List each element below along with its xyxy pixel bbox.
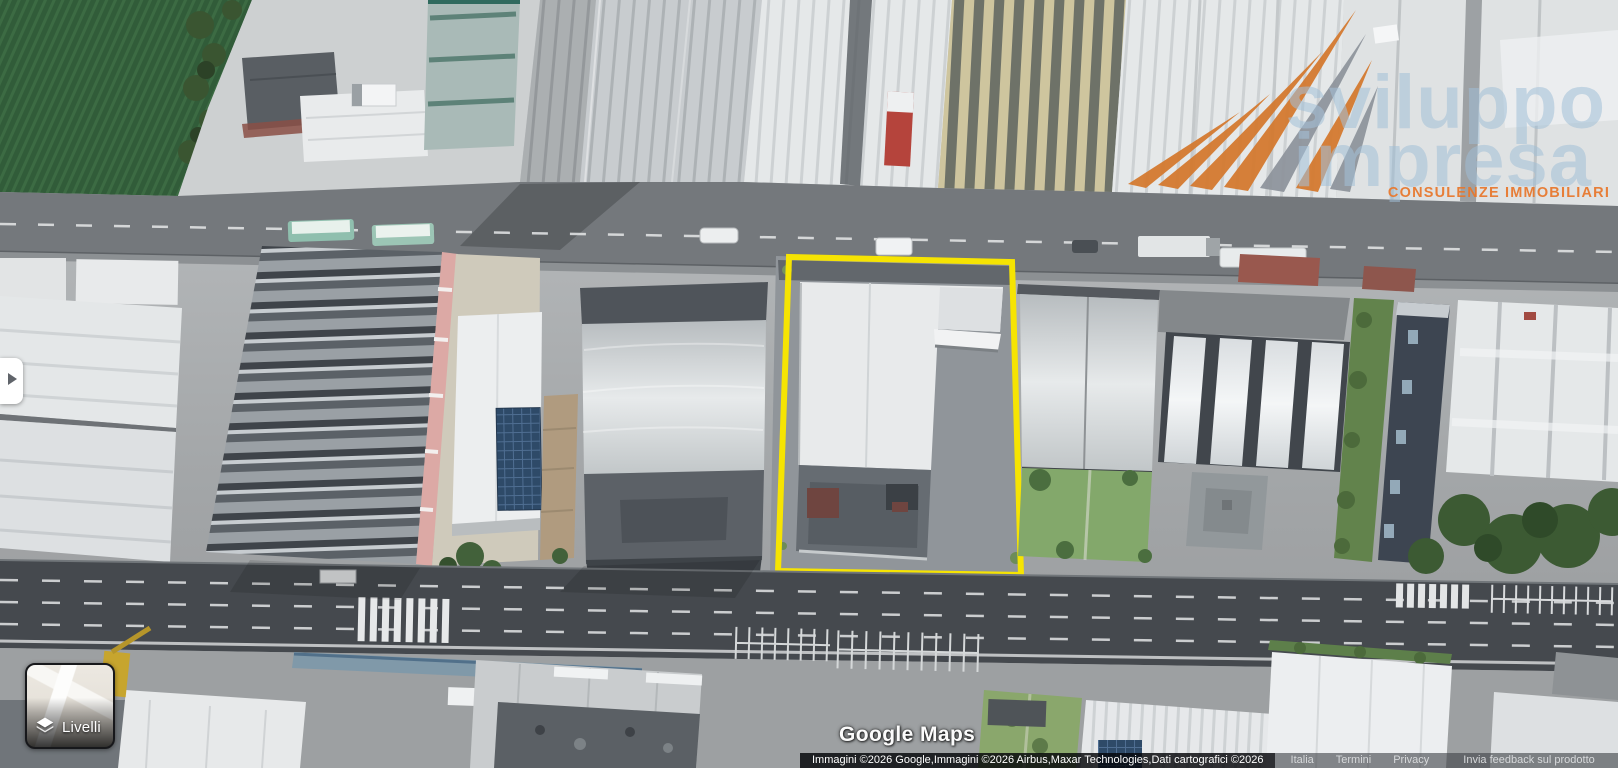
map-canvas[interactable]: sviluppo impresa CONSULENZE IMMOBILIARI <box>0 0 1618 768</box>
layers-button[interactable]: Livelli <box>25 663 115 749</box>
attribution-bar: Immagini ©2026 Google,Immagini ©2026 Air… <box>800 753 1618 768</box>
google-maps-watermark: Google Maps <box>839 723 975 747</box>
mid-buildings-west <box>0 246 768 574</box>
link-feedback[interactable]: Invia feedback sul prodotto <box>1463 753 1594 768</box>
layers-button-label: Livelli <box>62 719 101 736</box>
map-copyright: Immagini ©2026 Google,Immagini ©2026 Air… <box>800 753 1275 768</box>
right-arrow-icon <box>7 372 17 390</box>
layers-icon <box>35 715 55 740</box>
attribution-links: Italia Termini Privacy Invia feedback su… <box>1275 753 1618 768</box>
link-termini[interactable]: Termini <box>1336 753 1371 768</box>
logo-tagline: CONSULENZE IMMOBILIARI <box>1388 185 1610 201</box>
link-italia[interactable]: Italia <box>1291 753 1314 768</box>
satellite-scene: sviluppo impresa CONSULENZE IMMOBILIARI <box>0 0 1618 768</box>
link-privacy[interactable]: Privacy <box>1393 753 1429 768</box>
google-maps-window: sviluppo impresa CONSULENZE IMMOBILIARI … <box>0 0 1618 768</box>
highlighted-parcel <box>770 256 1022 576</box>
expand-side-panel-button[interactable] <box>0 358 23 404</box>
